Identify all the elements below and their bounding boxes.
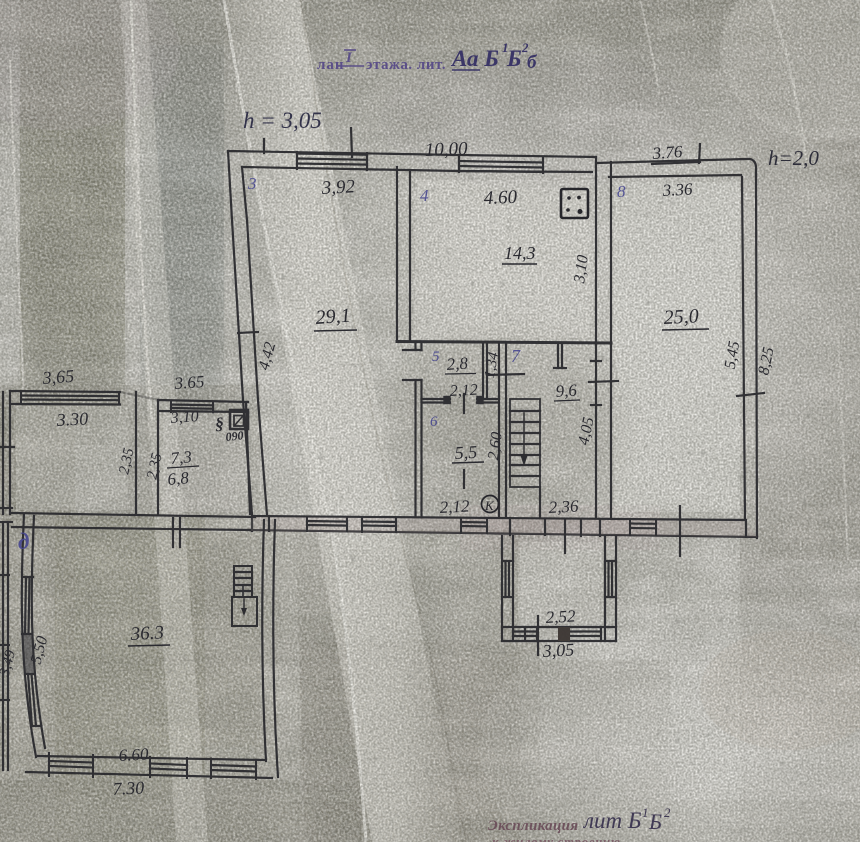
- svg-text:3,92: 3,92: [320, 176, 356, 199]
- svg-text:3: 3: [247, 174, 257, 193]
- svg-text:2: 2: [664, 805, 671, 820]
- svg-text:8: 8: [617, 182, 626, 201]
- svg-text:29,1: 29,1: [315, 305, 351, 329]
- svg-text:6: 6: [430, 414, 438, 430]
- svg-text:7,3: 7,3: [170, 447, 193, 468]
- svg-text:Б: Б: [506, 46, 522, 71]
- svg-text:1: 1: [642, 805, 649, 820]
- svg-text:h = 3,05: h = 3,05: [243, 108, 322, 133]
- svg-text:2,8: 2,8: [446, 354, 469, 374]
- svg-text:д: д: [18, 529, 29, 554]
- svg-text:3,10: 3,10: [169, 408, 199, 427]
- svg-text:25,0: 25,0: [663, 305, 699, 329]
- svg-text:5,5: 5,5: [454, 442, 478, 463]
- svg-text:2,12: 2,12: [449, 382, 478, 400]
- svg-text:36.3: 36.3: [129, 622, 164, 645]
- svg-text:5: 5: [432, 349, 440, 365]
- svg-text:3,05: 3,05: [541, 639, 575, 661]
- svg-text:лит Б: лит Б: [582, 808, 642, 833]
- svg-text:9,6: 9,6: [555, 381, 578, 401]
- svg-text:h=2,0: h=2,0: [768, 146, 819, 170]
- svg-text:7: 7: [511, 346, 521, 366]
- svg-text:К: К: [484, 498, 495, 513]
- svg-text:2,36: 2,36: [548, 496, 579, 517]
- svg-text:лан: лан: [317, 57, 345, 73]
- svg-text:14,3: 14,3: [504, 243, 536, 263]
- svg-text:Экспликация: Экспликация: [488, 818, 578, 834]
- svg-text:3.65: 3.65: [173, 372, 205, 393]
- svg-text:Аа Б: Аа Б: [450, 46, 499, 71]
- svg-text:6.60: 6.60: [118, 744, 149, 765]
- svg-text:3.30: 3.30: [55, 408, 89, 430]
- svg-text:4: 4: [420, 186, 429, 205]
- svg-text:2,52: 2,52: [545, 606, 576, 627]
- svg-text:3.76: 3.76: [651, 142, 683, 163]
- svg-text:090: 090: [225, 428, 244, 444]
- svg-text:4.60: 4.60: [483, 187, 517, 209]
- svg-text:6,8: 6,8: [167, 468, 190, 489]
- svg-text:I: I: [345, 50, 353, 66]
- svg-text:3.36: 3.36: [661, 179, 693, 200]
- svg-text:2,12: 2,12: [439, 496, 470, 517]
- svg-text:§: §: [215, 414, 225, 434]
- svg-text:3,65: 3,65: [41, 366, 75, 388]
- svg-text:б: б: [527, 52, 538, 73]
- svg-text:к жилому строению: к жилому строению: [492, 834, 621, 842]
- svg-text:Б: Б: [648, 809, 662, 834]
- svg-text:7.30: 7.30: [112, 777, 145, 799]
- svg-text:10,00: 10,00: [424, 139, 468, 161]
- svg-text:этажа. лит.: этажа. лит.: [366, 57, 446, 73]
